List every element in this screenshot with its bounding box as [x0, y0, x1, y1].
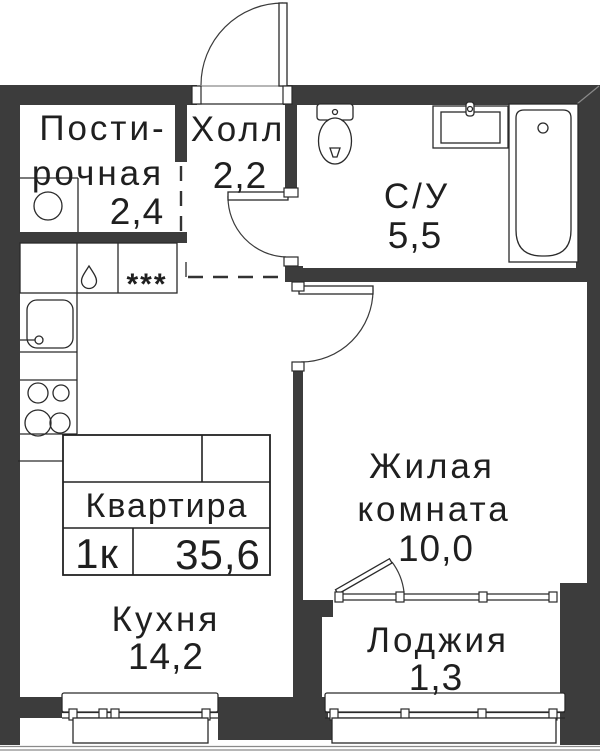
laundry-bottom-wall	[20, 232, 187, 243]
laundry-label: Пости- рочная 2,4	[32, 109, 167, 232]
living-room-label: Жилая комната 10,0	[357, 447, 510, 569]
floor-plan-svg: ***	[0, 0, 600, 751]
laundry-area: 2,4	[110, 191, 164, 232]
kitchen-name: Кухня	[112, 600, 221, 639]
stamp-rooms-label: 1к	[75, 530, 119, 577]
living-room-door	[292, 282, 373, 371]
hall-bathroom-wall	[285, 105, 297, 197]
entrance-door	[192, 3, 292, 104]
bathroom-door	[228, 188, 298, 266]
balcony-door-leaf	[336, 559, 393, 594]
laundry-name-line1: Пости-	[39, 109, 166, 148]
bathroom-name: С/У	[384, 177, 450, 216]
kitchen-window-sill	[73, 718, 208, 743]
entrance-door-leaf	[279, 3, 287, 86]
kitchen-living-wall	[293, 371, 303, 583]
living-room-door-leaf	[299, 286, 373, 294]
hall-label: Холл 2,2	[191, 110, 286, 196]
living-room-name-line2: комната	[357, 490, 510, 529]
floor-plan: ***	[0, 0, 600, 751]
bathroom-bottom-wall	[285, 268, 600, 282]
toilet-icon	[317, 104, 353, 164]
kitchen-counter-top-row: ***	[20, 243, 177, 301]
apartment-stamp-table: Квартира 1к 35,6	[63, 435, 270, 578]
living-room-area: 10,0	[398, 528, 474, 569]
bathroom-sink-icon	[433, 102, 508, 148]
living-room-name-line1: Жилая	[369, 447, 495, 486]
stove-icon	[25, 383, 70, 436]
freezer-stars: ***	[126, 268, 167, 301]
kitchen-window	[62, 693, 218, 743]
loggia-window	[325, 693, 565, 743]
loggia-area: 1,3	[409, 657, 463, 698]
bathroom-area: 5,5	[388, 215, 442, 256]
bathroom-label: С/У 5,5	[384, 177, 450, 256]
loggia-left-wall	[293, 583, 303, 718]
laundry-name-line2: рочная	[32, 154, 164, 193]
kitchen-area: 14,2	[128, 636, 204, 677]
hall-name: Холл	[191, 110, 286, 149]
loggia-label: Лоджия 1,3	[367, 621, 509, 698]
loggia-window-sill	[332, 718, 556, 743]
loggia-name: Лоджия	[367, 621, 509, 660]
bathtub-icon	[509, 104, 578, 262]
washing-machine-icon	[34, 192, 62, 220]
stamp-title: Квартира	[86, 487, 249, 525]
stamp-total-area: 35,6	[175, 531, 261, 578]
kitchen-label: Кухня 14,2	[112, 600, 221, 677]
hall-area: 2,2	[213, 155, 267, 196]
laundry-hall-wall	[175, 105, 187, 162]
kitchen-sink-icon	[20, 300, 73, 348]
